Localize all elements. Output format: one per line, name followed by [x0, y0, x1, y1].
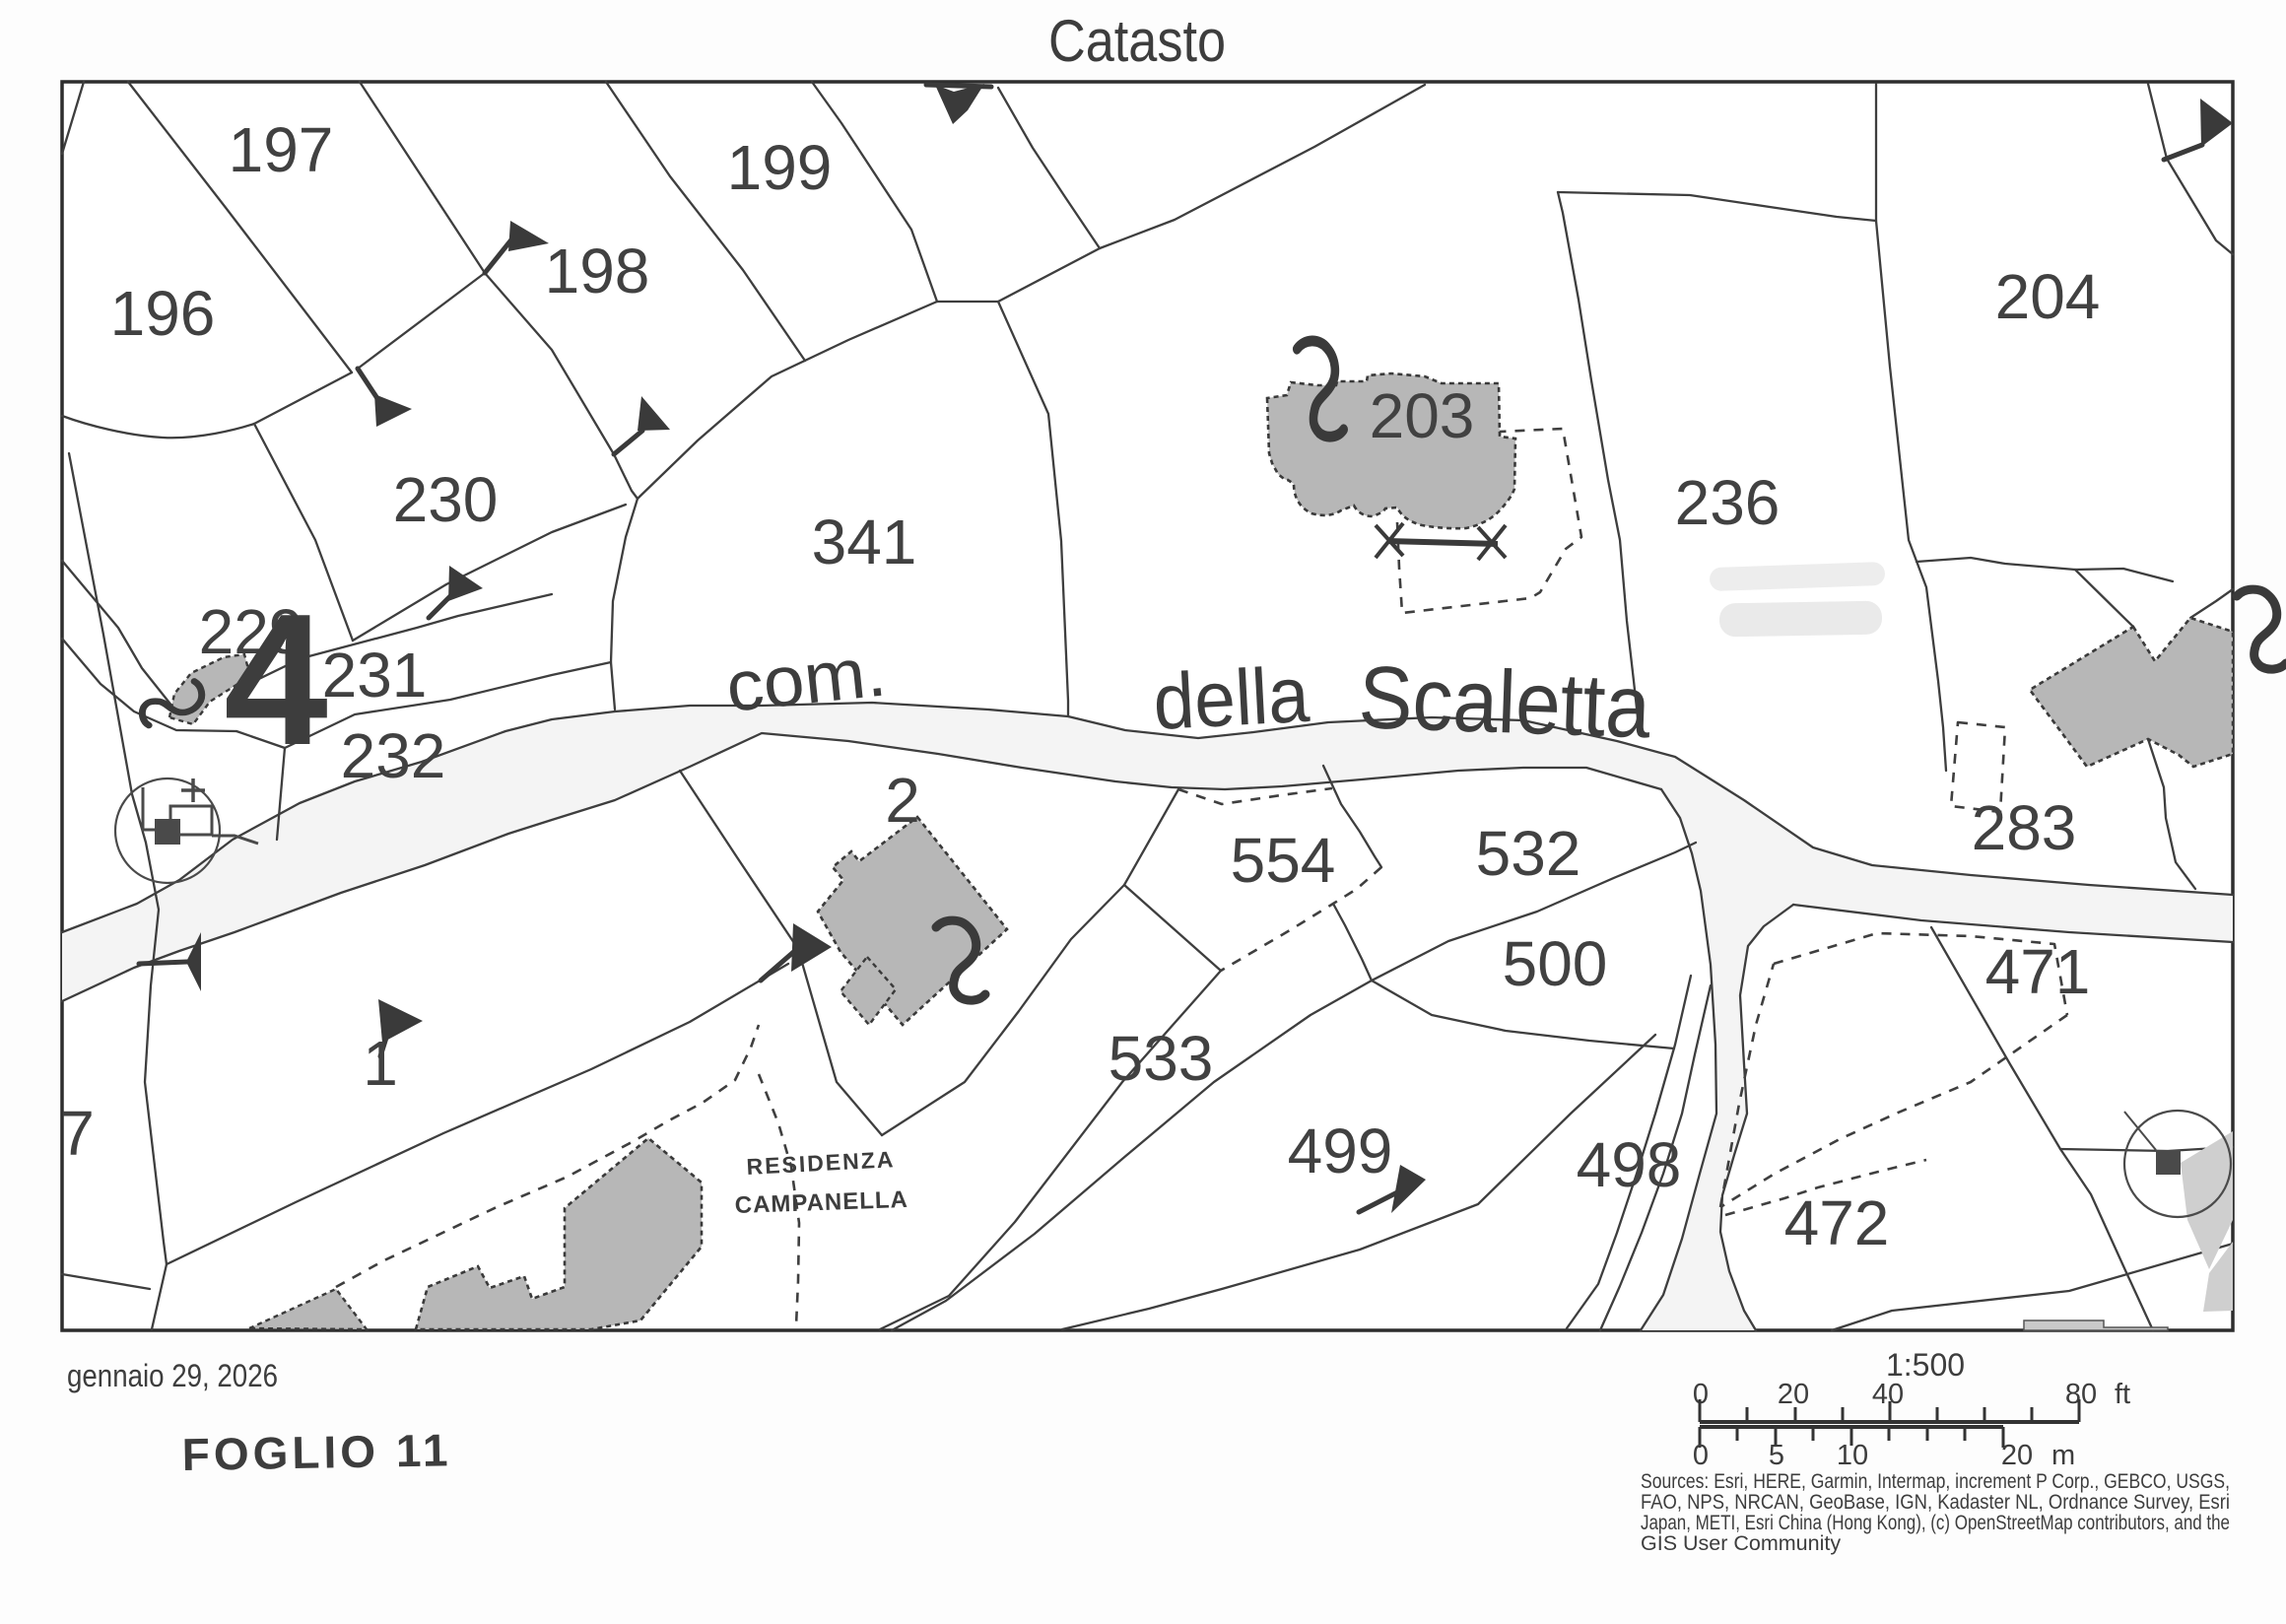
svg-text:197: 197 [229, 114, 334, 185]
svg-text:236: 236 [1675, 467, 1781, 538]
svg-text:498: 498 [1577, 1129, 1682, 1200]
svg-text:gennaio 29, 2026: gennaio 29, 2026 [67, 1358, 278, 1393]
svg-text:231: 231 [322, 640, 428, 710]
svg-text:GIS User Community: GIS User Community [1641, 1531, 1841, 1555]
svg-text:198: 198 [545, 236, 650, 306]
svg-text:della: della [1151, 650, 1311, 746]
svg-text:ft: ft [2115, 1379, 2130, 1410]
svg-text:40: 40 [1872, 1379, 1904, 1410]
svg-text:196: 196 [110, 278, 216, 349]
svg-text:203: 203 [1370, 380, 1475, 451]
svg-text:5: 5 [1769, 1440, 1784, 1471]
svg-text:499: 499 [1288, 1116, 1393, 1186]
svg-text:471: 471 [1985, 936, 2091, 1007]
svg-text:472: 472 [1784, 1187, 1890, 1258]
svg-text:4: 4 [224, 575, 328, 784]
svg-text:230: 230 [393, 464, 499, 535]
svg-text:199: 199 [727, 132, 833, 203]
svg-text:20: 20 [1778, 1379, 1809, 1410]
svg-text:7: 7 [59, 1098, 95, 1169]
svg-text:341: 341 [812, 507, 917, 577]
svg-text:Scaletta: Scaletta [1357, 648, 1652, 757]
svg-text:10: 10 [1837, 1440, 1868, 1471]
svg-text:500: 500 [1503, 928, 1608, 999]
svg-text:m: m [2051, 1440, 2075, 1471]
svg-text:204: 204 [1995, 261, 2101, 332]
svg-text:20: 20 [2001, 1440, 2033, 1471]
svg-text:1:500: 1:500 [1886, 1347, 1965, 1383]
svg-text:554: 554 [1231, 825, 1336, 896]
svg-text:FOGLIO 11: FOGLIO 11 [181, 1424, 452, 1480]
svg-text:Catasto: Catasto [1048, 8, 1226, 74]
svg-text:2: 2 [885, 765, 920, 836]
svg-text:1: 1 [363, 1028, 398, 1099]
svg-text:533: 533 [1109, 1023, 1214, 1094]
svg-text:532: 532 [1476, 818, 1581, 889]
svg-text:com.: com. [722, 632, 889, 726]
svg-text:0: 0 [1693, 1440, 1709, 1471]
svg-text:283: 283 [1972, 792, 2077, 863]
svg-text:232: 232 [341, 720, 446, 791]
svg-text:80: 80 [2065, 1379, 2097, 1410]
